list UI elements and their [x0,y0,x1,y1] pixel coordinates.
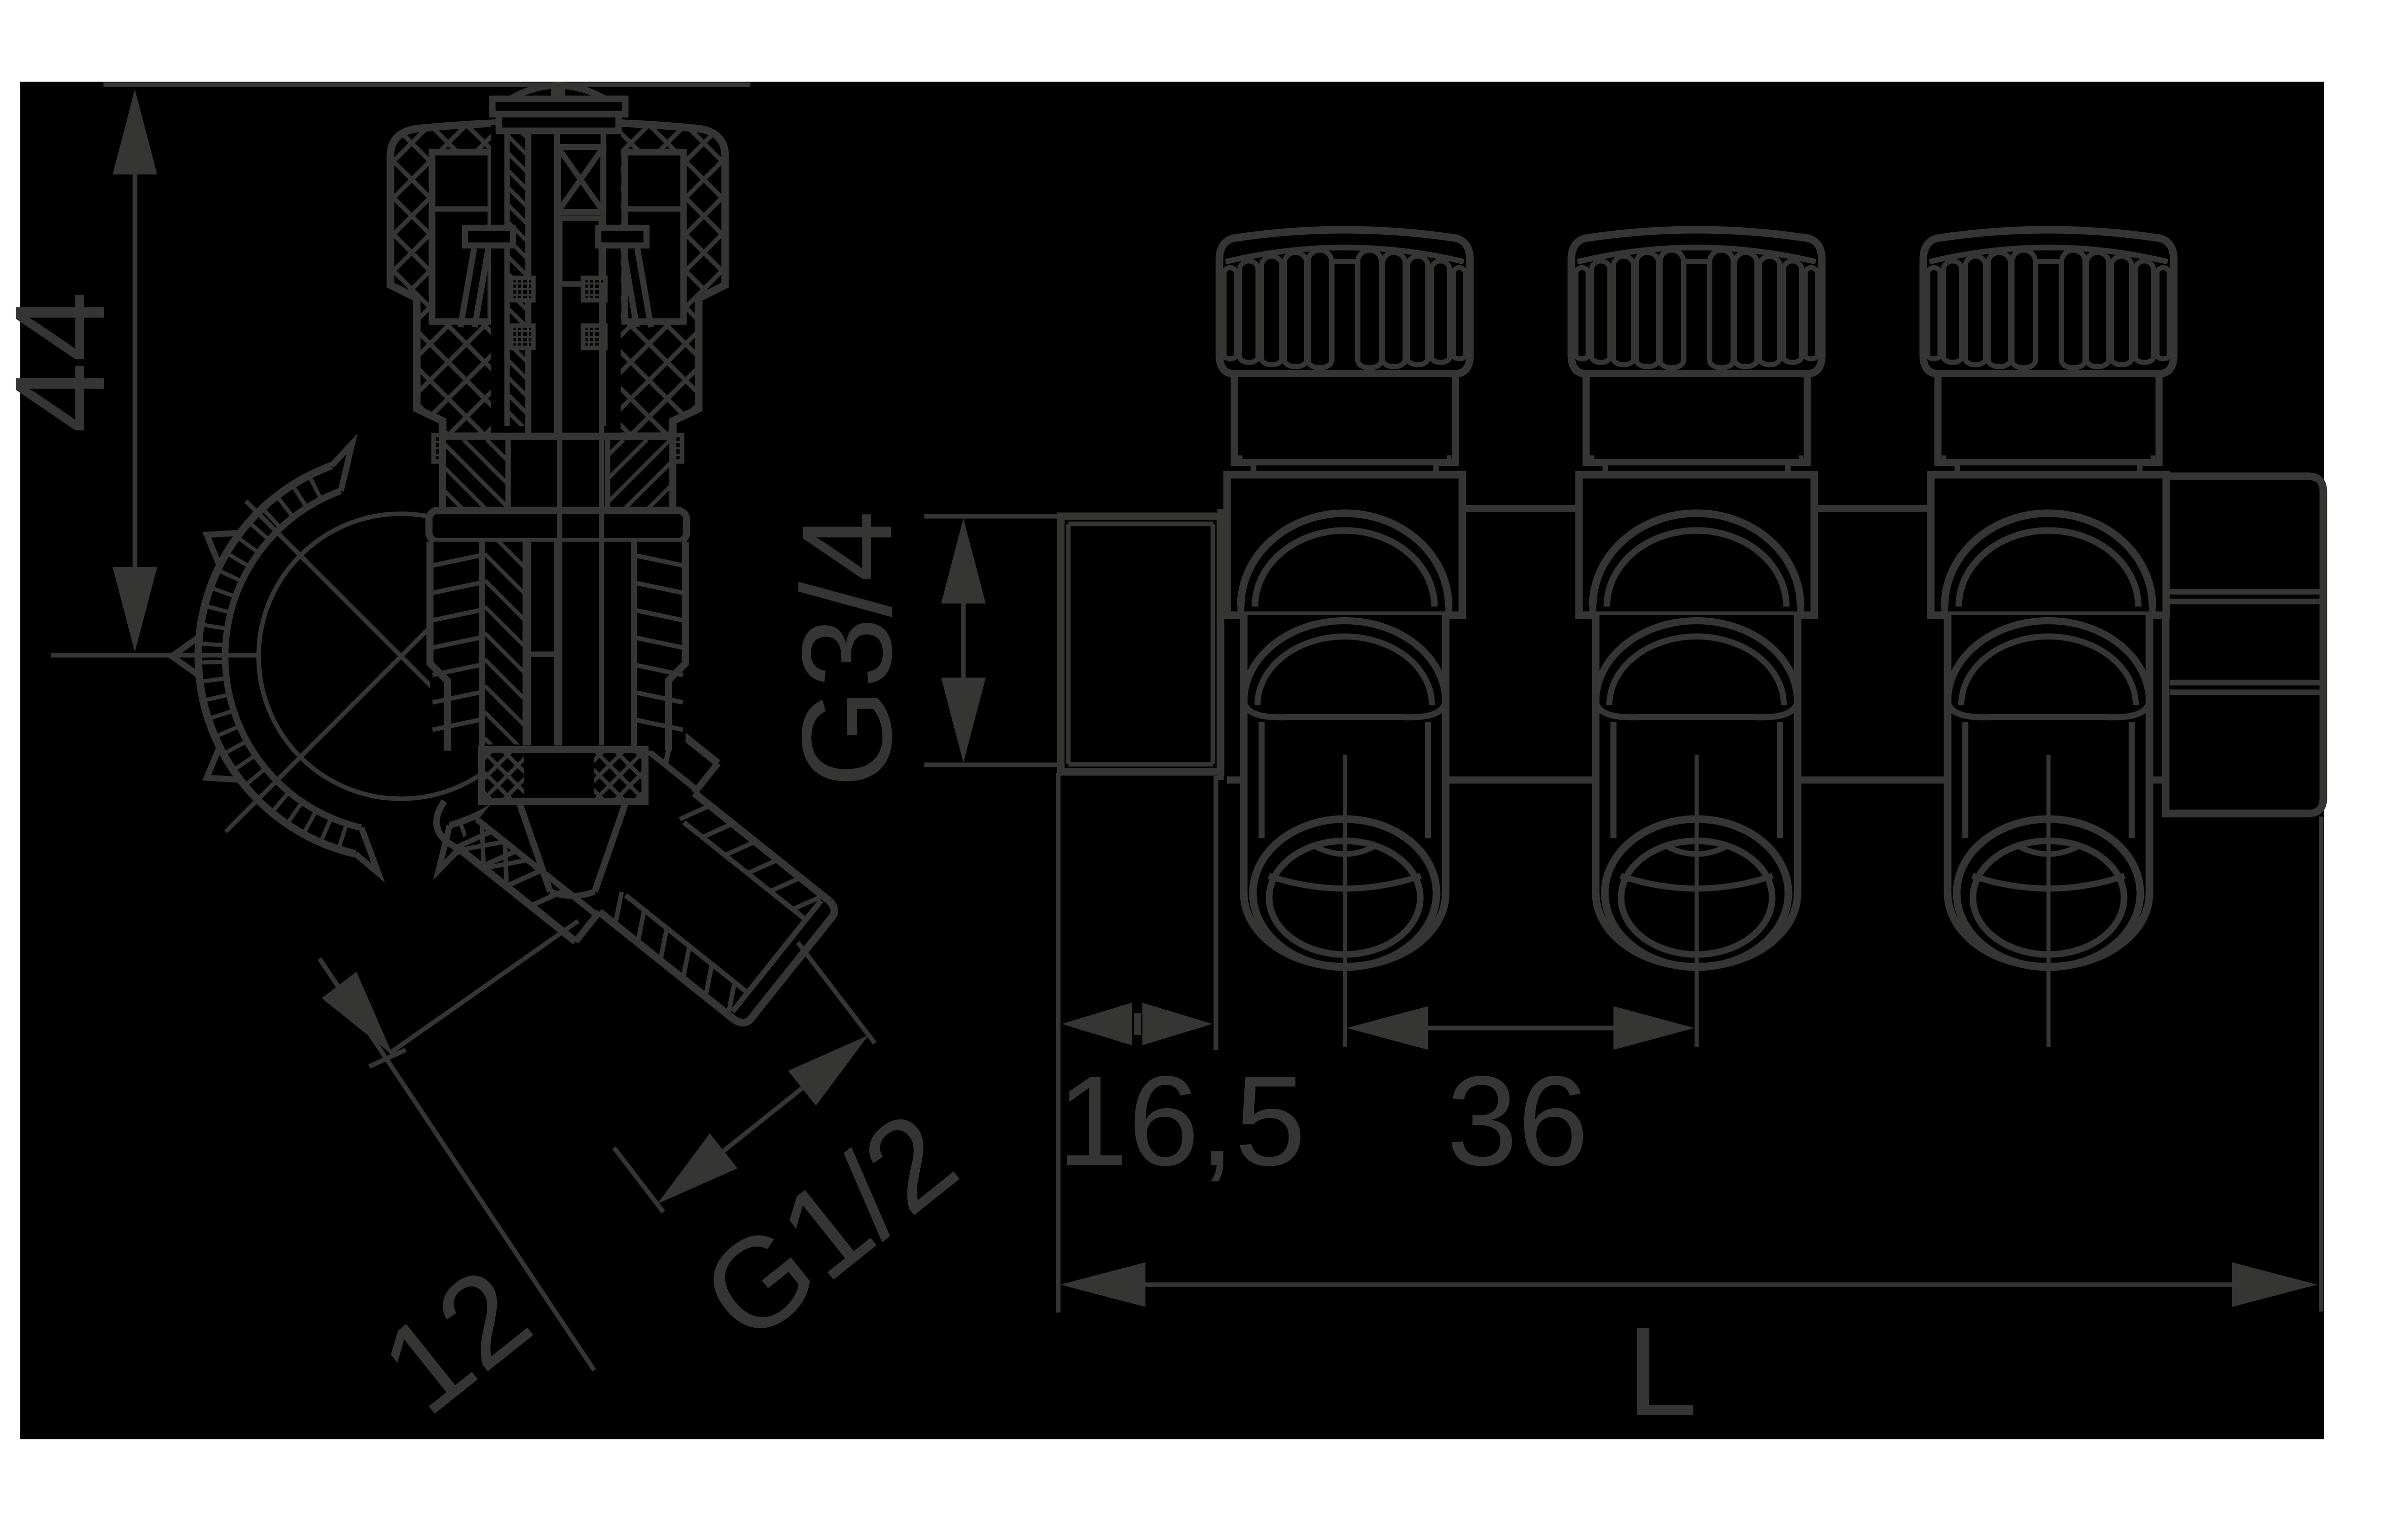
svg-text:36: 36 [1447,1050,1589,1192]
svg-text:16,5: 16,5 [1057,1050,1306,1192]
svg-text:L: L [1627,1300,1697,1442]
svg-text:G3/4: G3/4 [776,511,918,788]
svg-text:44: 44 [0,291,131,433]
